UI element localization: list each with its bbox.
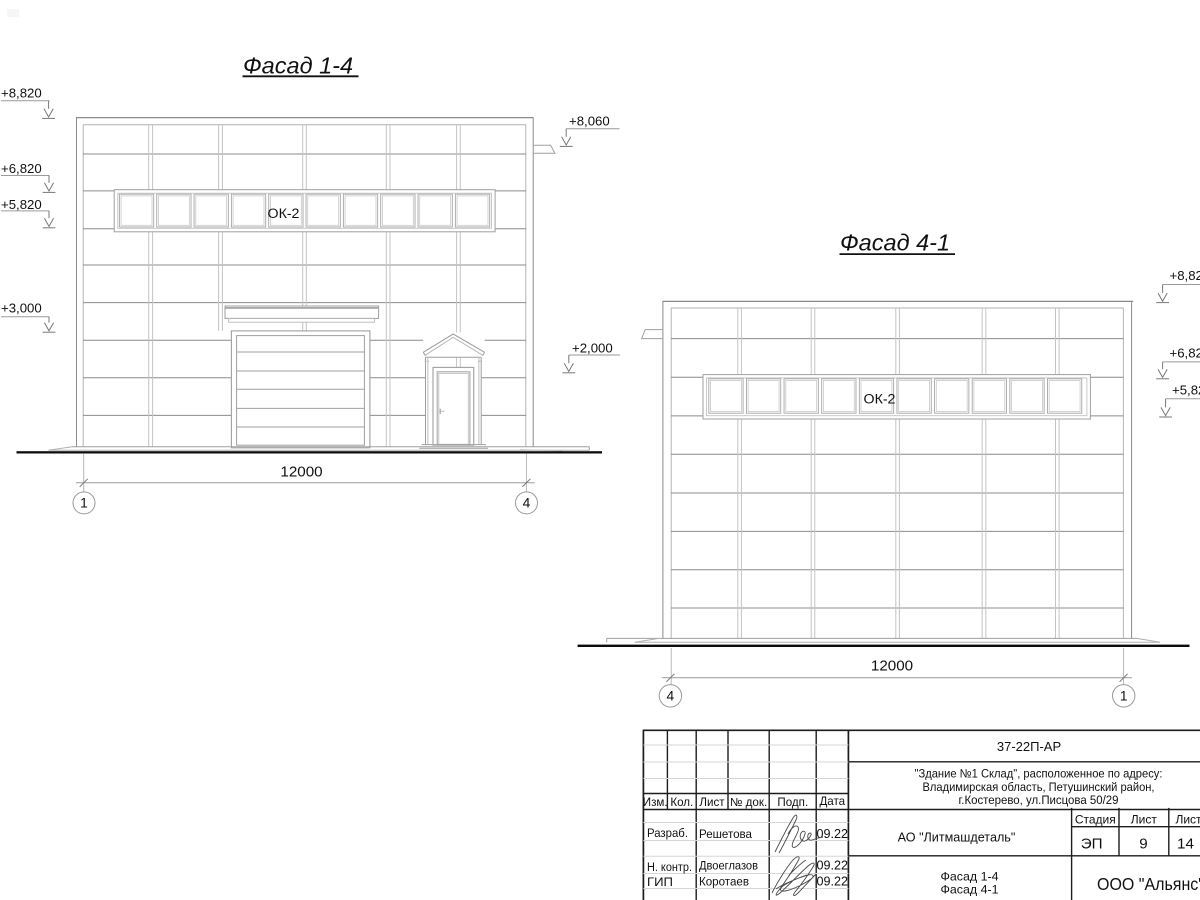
svg-text:Коротаев: Коротаев [699,875,749,889]
svg-text:Кол.: Кол. [670,796,693,809]
svg-text:№ док.: № док. [730,796,767,809]
svg-text:14: 14 [1177,836,1194,853]
svg-text:12000: 12000 [871,657,913,674]
svg-text:"Здание №1 Склад", расположенн: "Здание №1 Склад", расположенное по адре… [915,767,1163,781]
svg-text:Н. контр.: Н. контр. [647,860,692,874]
svg-text:Дата: Дата [819,795,845,808]
svg-text:4: 4 [667,689,675,704]
svg-text:Двоеглазов: Двоеглазов [699,858,758,872]
svg-text:Лист: Лист [1175,813,1200,827]
svg-text:37-22П-АР: 37-22П-АР [997,739,1061,754]
svg-text:Фасад 1-4: Фасад 1-4 [941,869,999,883]
svg-text:Владимирская область, Петушинс: Владимирская область, Петушинский район, [923,780,1155,794]
svg-text:+6,820: +6,820 [1170,345,1200,360]
svg-text:Разраб.: Разраб. [647,826,688,840]
svg-text:1: 1 [80,496,88,511]
svg-text:+2,000: +2,000 [572,340,613,355]
svg-text:Фасад 4-1: Фасад 4-1 [840,230,950,256]
svg-text:+8,820: +8,820 [1,86,42,101]
svg-text:12000: 12000 [280,464,322,481]
svg-text:Решетова: Решетова [699,827,752,841]
svg-text:Фасад 4-1: Фасад 4-1 [941,883,999,897]
svg-text:09.22: 09.22 [817,827,849,841]
svg-text:АО "Литмашдеталь": АО "Литмашдеталь" [898,831,1016,845]
svg-text:9: 9 [1139,836,1147,853]
svg-text:Стадия: Стадия [1075,813,1116,827]
svg-text:ООО "Альянс": ООО "Альянс" [1097,874,1200,894]
svg-text:ЭП: ЭП [1081,836,1103,853]
svg-text:1: 1 [1120,689,1128,704]
svg-text:09.22: 09.22 [817,858,849,872]
svg-text:Фасад 1-4: Фасад 1-4 [243,53,353,79]
svg-text:09.22: 09.22 [817,875,849,889]
svg-text:ОК-2: ОК-2 [268,206,300,222]
svg-text:г.Костерево, ул.Писцова 50/29: г.Костерево, ул.Писцова 50/29 [959,793,1119,807]
svg-text:+6,820: +6,820 [1,161,42,176]
svg-text:Лист: Лист [1131,813,1158,827]
svg-text:+5,820: +5,820 [1172,382,1200,397]
svg-text:4: 4 [523,496,531,511]
svg-text:ОК-2: ОК-2 [864,391,896,407]
svg-text:+8,060: +8,060 [569,113,610,128]
svg-text:Лист: Лист [699,796,725,809]
svg-text:+5,820: +5,820 [1,197,42,212]
svg-text:+3,000: +3,000 [1,300,42,315]
svg-text:Подп.: Подп. [777,796,808,809]
svg-text:+8,820: +8,820 [1170,268,1200,283]
svg-text:ГИП: ГИП [647,875,673,889]
svg-text:Изм.: Изм. [643,796,668,809]
